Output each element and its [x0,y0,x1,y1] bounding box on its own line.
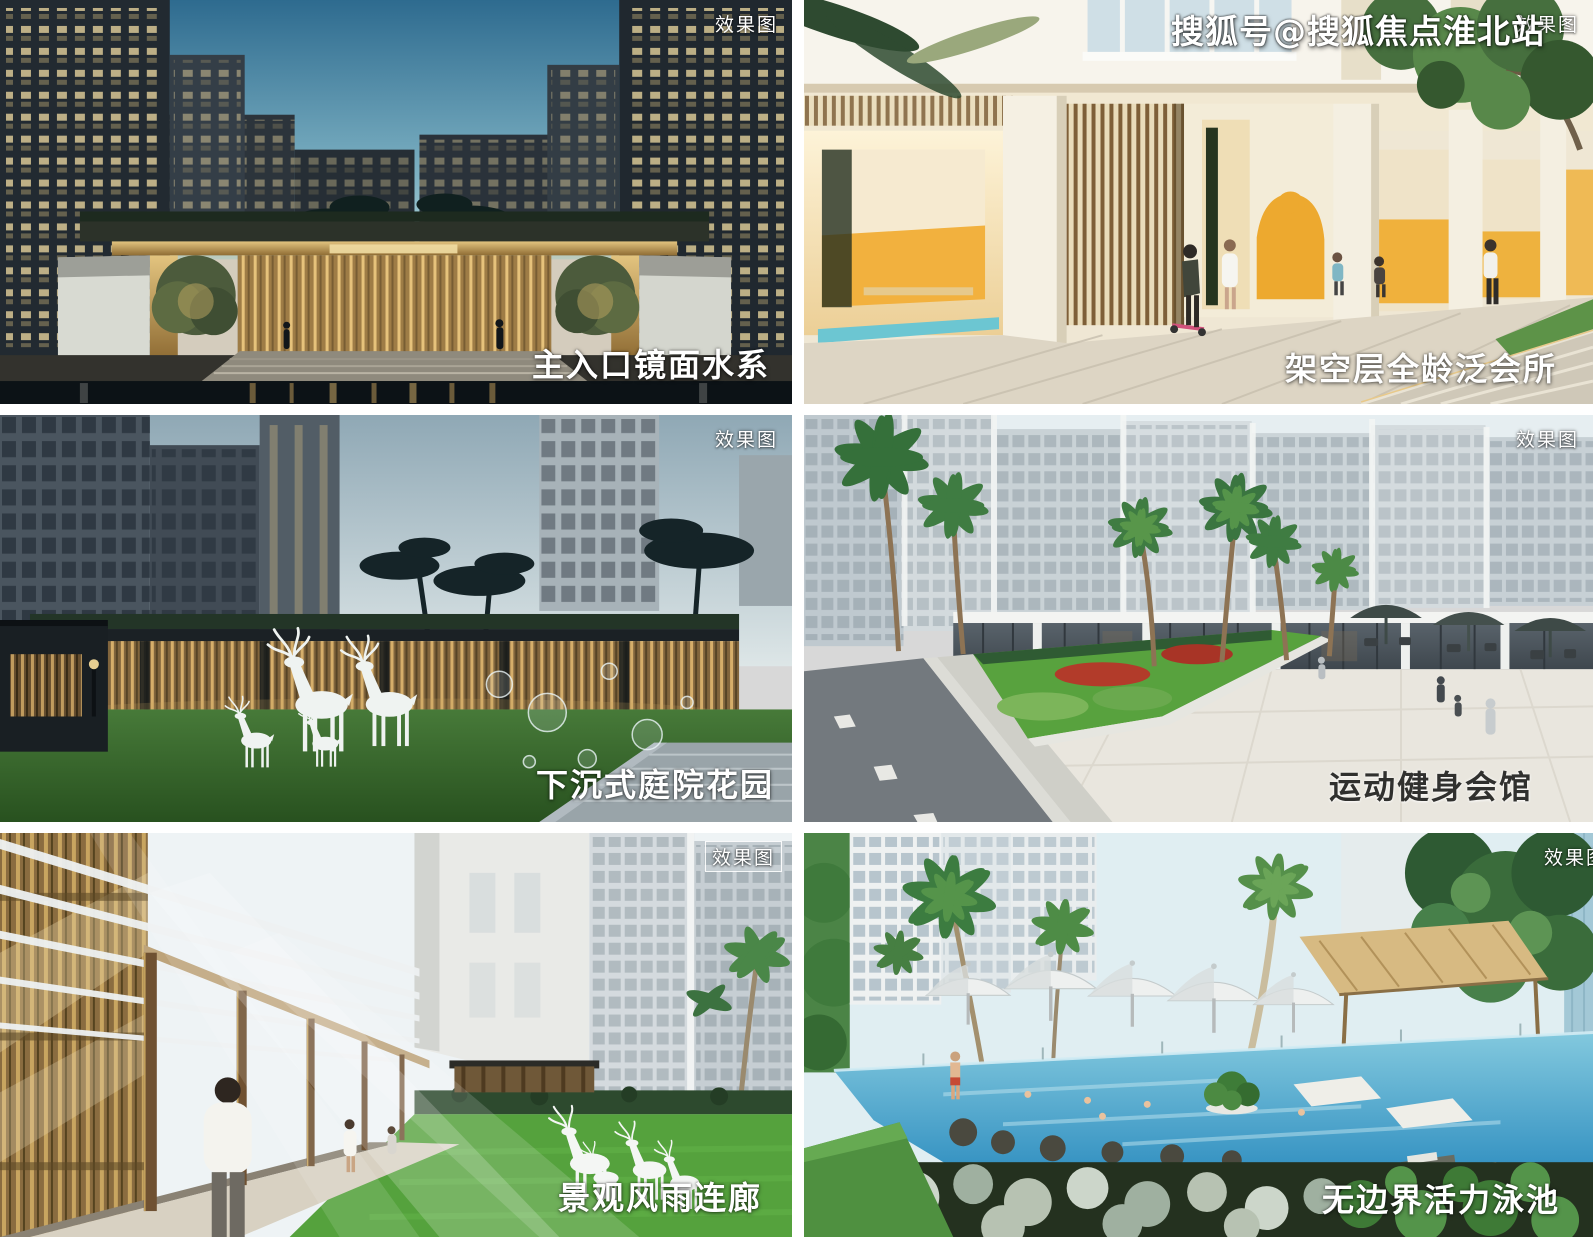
render-badge: 效果图 [1516,425,1579,452]
panel-podium-all-age-clubhouse: 效果图 搜狐号@搜狐焦点淮北站 架空层全龄泛会所 [804,0,1593,404]
panel-sunken-courtyard-garden: 效果图 下沉式庭院花园 [0,415,792,822]
panel-landscape-covered-corridor: 效果图 景观风雨连廊 [0,833,792,1237]
panel-caption: 架空层全龄泛会所 [1285,344,1557,390]
yellow-feature-wall [1257,194,1325,300]
render-badge: 效果图 [715,425,778,452]
panel-caption: 运动健身会馆 [1329,762,1533,808]
entrance-steps [202,351,588,381]
scene-sports-clubhouse [804,415,1593,822]
panel-sports-fitness-clubhouse: 效果图 运动健身会馆 [804,415,1593,822]
panel-caption: 无边界活力泳池 [1322,1175,1560,1221]
panel-infinity-pool: 效果图 无边界活力泳池 [804,833,1593,1237]
left-recess [804,131,1003,343]
render-badge: 效果图 [715,10,778,37]
foreground-pavilion [0,620,108,752]
render-collage: 效果图 主入口镜面水系 [0,0,1593,1237]
panel-caption: 主入口镜面水系 [532,340,770,386]
watermark-text: 搜狐号@搜狐焦点淮北站 [1171,5,1545,53]
panel-caption: 下沉式庭院花园 [536,760,774,806]
panel-main-entrance-water-feature: 效果图 主入口镜面水系 [0,0,792,404]
residential-towers [804,415,1593,646]
render-badge: 效果图 [1544,843,1593,870]
panel-caption: 景观风雨连廊 [558,1173,762,1219]
render-badge: 效果图 [705,841,782,872]
